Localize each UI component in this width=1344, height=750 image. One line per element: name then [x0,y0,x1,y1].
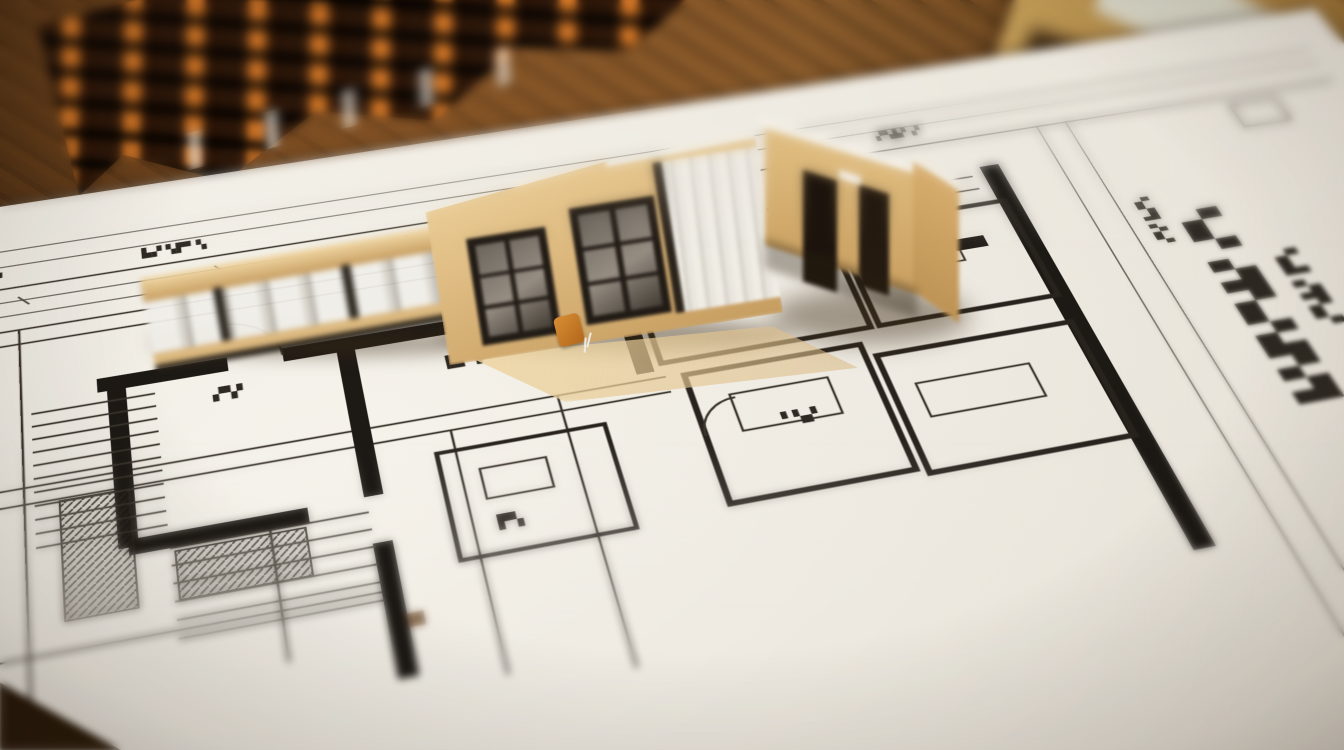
model-window [466,227,562,346]
miniature-model [0,0,1344,750]
model-window [568,195,671,325]
photo-scene: ▚▞▘▞▚▘ ▙▞ ▚▛▘▚ ▞▚▙▘▞ ▙▚▞▘ ▛▞▚▘ ▙▞▘▚ ▚▛▞ … [0,0,1344,750]
model-right-wing [755,123,965,353]
furniture-marker [406,610,427,627]
